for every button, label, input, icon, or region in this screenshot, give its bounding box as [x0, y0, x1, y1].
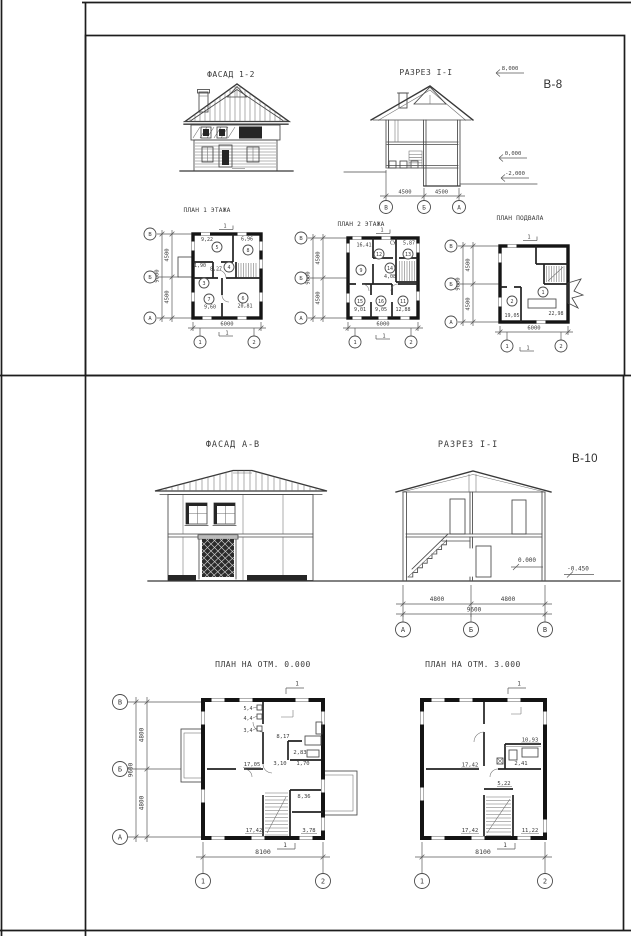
b10-plan3-axis-1: 1: [420, 878, 424, 886]
b10-plan0-dim-lower: 4800: [139, 795, 146, 810]
b10-plan0-axis-v: В: [118, 699, 122, 707]
room-area: 9,05: [375, 307, 387, 313]
room-area: 3,78: [302, 828, 315, 834]
room-area: 1,70: [296, 761, 309, 767]
b8-basement-bottom-dim: 6000: [527, 326, 540, 332]
b8-plan2-cut-top: 1: [380, 228, 383, 234]
room-area: 10,93: [522, 738, 539, 744]
scanned-sheet: ФАСАД 1-2 РАЗРЕЗ I-I В-8: [0, 0, 631, 936]
room-number: 11: [400, 299, 406, 305]
b10-section-axis-b: Б: [469, 626, 473, 634]
b10-plan3-cut-bottom: 1: [503, 842, 507, 849]
b8-section-title: РАЗРЕЗ I-I: [399, 68, 452, 77]
b8-basement-axis-2: 2: [559, 344, 562, 350]
room-number: 6: [241, 296, 244, 302]
duct-label: 5,4: [243, 706, 252, 712]
drawings-svg: ФАСАД 1-2 РАЗРЕЗ I-I В-8: [0, 0, 631, 936]
room-area: 5,87: [403, 241, 415, 247]
b10-plan0-cut-top: 1: [295, 681, 299, 688]
b10-plan3-bottom-dim: 8100: [475, 848, 491, 856]
b8-plan1-axis-2: 2: [252, 340, 255, 346]
room-area: 17,42: [246, 828, 263, 834]
room-area: 17,05: [244, 762, 261, 768]
b10-section-axis-v: В: [543, 626, 547, 634]
b10-plan0-cut-bottom: 1: [283, 842, 287, 849]
b8-plan2-cut-bottom: 1: [382, 334, 385, 340]
room-area: 2,41: [514, 761, 527, 767]
b8-plan1-title: ПЛАН 1 ЭТАЖА: [183, 207, 230, 214]
room-area: 5,22: [497, 781, 510, 787]
room-number: 4: [227, 265, 230, 271]
b8-plan1: ПЛАН 1 ЭТАЖА 9000 4500 4500 В Б А 5 9,22…: [144, 207, 266, 348]
room-area: 8,36: [297, 794, 310, 800]
b10-section-drawing: 0.000 -0.450: [396, 471, 594, 580]
b8-section-dims: 4500 4500 В Б А: [380, 170, 466, 214]
b8-section-axis-v: В: [384, 204, 388, 211]
room-number: 14: [387, 266, 393, 272]
duct-label: 4,4: [243, 716, 252, 722]
b8-basement-title: ПЛАН ПОДВАЛА: [496, 215, 543, 222]
room-area: 6,96: [241, 237, 253, 243]
b10-plan0-total-dim: 9600: [128, 762, 135, 777]
figure-b8: ФАСАД 1-2 РАЗРЕЗ I-I В-8: [86, 36, 625, 376]
b8-plan1-bottom-dim: 6000: [220, 322, 233, 328]
room-number: 16: [378, 299, 384, 305]
room-area: 22,98: [548, 311, 563, 317]
b8-plan1-dim-upper: 4500: [165, 248, 171, 261]
room-number: 9: [359, 268, 362, 274]
b8-basement-dim-lower: 4500: [466, 297, 472, 310]
room-area: 1,90: [194, 263, 206, 269]
b8-basement-plan: ПЛАН ПОДВАЛА 9000 4500 4500 В Б А 2 19,0…: [445, 215, 583, 352]
b8-elevation-marks: 8,000 0,000 -2,000: [496, 66, 529, 182]
b8-plan2-title: ПЛАН 2 ЭТАЖА: [337, 221, 384, 228]
room-number: 3: [202, 281, 205, 287]
b10-plan0-axis-b: Б: [118, 766, 122, 774]
b10-plan0-bottom-dim: 8100: [255, 848, 271, 856]
room-area: 2,83: [293, 750, 306, 756]
figure-b10: ФАСАД А-В РАЗРЕЗ I-I В-10: [113, 440, 621, 889]
b8-plan2-su-label: СУ: [390, 241, 396, 247]
b8-plan2: ПЛАН 2 ЭТАЖА 9000 4500 4500 В Б А 16,41 …: [295, 221, 423, 348]
room-area: 8,27: [210, 267, 222, 273]
b8-basement-cut-top: 1: [527, 235, 530, 241]
b8-section-axis-a: А: [457, 204, 461, 211]
b8-elevation-top: 8,000: [502, 66, 519, 72]
b8-figure-code: В-8: [543, 79, 562, 91]
b10-plan0-axis-2: 2: [321, 878, 325, 886]
b8-elevation-zero: 0,000: [505, 151, 522, 157]
room-number: 2: [510, 299, 513, 305]
room-area: 17,42: [462, 828, 479, 834]
room-area: 9,60: [204, 305, 216, 311]
b10-figure-code: В-10: [572, 453, 598, 465]
room-number: 13: [405, 252, 411, 258]
room-area: 3,10: [273, 761, 286, 767]
b8-basement-axis-1: 1: [505, 344, 508, 350]
b8-plan1-cut-top: 1: [223, 224, 226, 230]
b10-facade-drawing: [155, 468, 327, 581]
room-area: 4,08: [384, 274, 396, 280]
room-number: 5: [215, 245, 218, 251]
room-area: 9,01: [354, 307, 366, 313]
b10-section-total-dim: 9600: [467, 607, 482, 614]
b8-basement-dim-upper: 4500: [466, 258, 472, 271]
room-number: 1: [541, 290, 544, 296]
room-number: 15: [357, 299, 363, 305]
b10-section-title: РАЗРЕЗ I-I: [438, 440, 498, 450]
b10-section-dim-right: 4800: [501, 596, 516, 603]
b8-plan1-axis-1: 1: [198, 340, 201, 346]
sheet-borders: [0, 0, 631, 936]
room-area: 11,22: [522, 828, 539, 834]
b8-plan2-dim-upper: 4500: [316, 251, 322, 264]
room-number: 7: [207, 297, 210, 303]
room-area: 9,22: [201, 237, 213, 243]
b10-facade-title: ФАСАД А-В: [206, 440, 260, 450]
b8-section-dim-left: 4500: [398, 190, 411, 196]
b8-plan1-dim-lower: 4500: [165, 290, 171, 303]
b8-facade-drawing: [180, 84, 293, 171]
b10-plan3-title: ПЛАН НА ОТМ. 3.000: [425, 660, 521, 669]
room-area: 17,42: [462, 763, 479, 769]
b8-plan2-axis-2: 2: [409, 340, 412, 346]
b10-plan0: ПЛАН НА ОТМ. 0.000 9600 4800 4800 В Б А …: [113, 660, 358, 889]
b8-basement-cut-bottom: 1: [526, 346, 529, 352]
room-number: 8: [246, 248, 249, 254]
b8-plan2-axis-1: 1: [353, 340, 356, 346]
duct-label: 3,4: [243, 728, 252, 734]
room-number: 12: [376, 252, 382, 258]
room-area: 20,81: [237, 304, 252, 310]
room-area: 8,17: [276, 734, 289, 740]
room-area: 19,05: [504, 313, 519, 319]
b8-section-axis-b: Б: [422, 204, 426, 211]
b8-plan2-dim-lower: 4500: [316, 291, 322, 304]
b8-plan1-cut-bottom: 1: [225, 331, 228, 337]
b8-elevation-basement: -2,000: [505, 171, 525, 177]
room-area: 12,88: [395, 307, 410, 313]
b10-plan0-title: ПЛАН НА ОТМ. 0.000: [215, 660, 311, 669]
room-area: 16,41: [356, 243, 371, 249]
b10-elevation-zero: 0.000: [518, 557, 536, 564]
b10-section-dims: 4800 4800 9600 А Б В: [396, 585, 553, 637]
b10-plan3: ПЛАН НА ОТМ. 3.000 10,93 2,41 17,42 5,22…: [415, 660, 553, 889]
b10-plan3-cut-top: 1: [517, 681, 521, 688]
b10-plan3-axis-2: 2: [543, 878, 547, 886]
b10-elevation-minus: -0.450: [567, 566, 589, 573]
b10-section-dim-left: 4800: [430, 596, 445, 603]
b10-plan0-axis-1: 1: [201, 878, 205, 886]
b8-facade-title: ФАСАД 1-2: [207, 70, 255, 79]
b10-plan0-dim-upper: 4800: [139, 727, 146, 742]
b8-plan2-bottom-dim: 6000: [376, 322, 389, 328]
b8-section-dim-right: 4500: [435, 190, 448, 196]
